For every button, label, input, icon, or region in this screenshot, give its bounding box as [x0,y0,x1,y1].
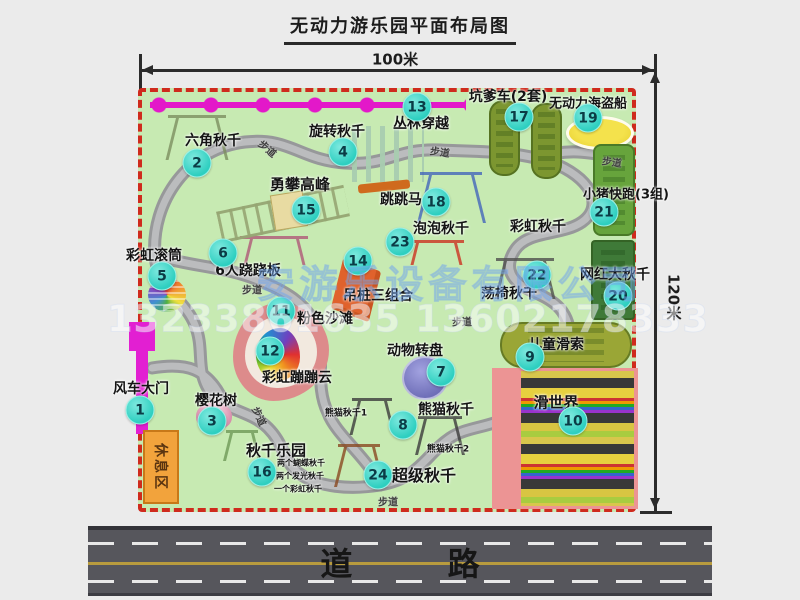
path-label-1: 步道 [429,142,451,160]
attraction-17-label: 坑爹车(2套) [469,86,548,106]
attraction-9-badge: 9 [516,343,545,372]
playground-map-page: 无动力游乐园平面布局图 100米 120米 休息区 风车大门1六角秋千2樱花树3… [0,0,800,600]
attraction-4-badge: 4 [329,138,358,167]
attraction-15-label: 勇攀高峰 [270,174,330,195]
dimension-tick-bottom-right [640,511,672,514]
slide-world-icon [492,368,638,509]
attraction-16-badge: 16 [248,458,277,487]
attraction-6-badge: 6 [209,239,238,268]
attraction-2-label: 六角秋千 [185,130,241,150]
attraction-12-label: 彩虹蹦蹦云 [262,367,332,387]
rest-area-box: 休息区 [143,430,179,504]
attraction-23-label: 泡泡秋千 [413,218,469,238]
dimension-arrow-down [650,498,660,509]
pit-car-track-2-icon [531,103,562,179]
dimension-label-top: 100米 [372,49,418,70]
attraction-15-badge: 15 [292,196,321,225]
extra-label-4: 两个发光秋千 [276,471,324,482]
attraction-12-badge: 12 [256,337,285,366]
attraction-23-badge: 23 [386,228,415,257]
attraction-17-badge: 17 [505,103,534,132]
attraction-1-badge: 1 [126,396,155,425]
rest-area-label: 休息区 [151,443,171,491]
attraction-8-label: 熊猫秋千 [418,399,474,419]
dimension-arrow-up [650,72,660,83]
attraction-5-label: 彩虹滚筒 [126,245,182,265]
attraction-19-badge: 19 [574,104,603,133]
extra-label-1: 熊猫秋千1 [325,406,367,419]
dimension-line-right [654,70,657,512]
attraction-3-badge: 3 [198,407,227,436]
attraction-21-badge: 21 [590,198,619,227]
path-label-6: 步道 [378,494,398,509]
extra-label-3: 两个蝴蝶秋千 [277,458,325,469]
attraction-13-badge: 13 [403,93,432,122]
attraction-18-badge: 18 [422,188,451,217]
attraction-2-badge: 2 [183,149,212,178]
attraction-18-label: 跳跳马 [380,189,422,209]
extra-label-5: 一个彩虹秋千 [274,484,322,495]
attraction-7-badge: 7 [427,358,456,387]
attraction-8-badge: 8 [389,411,418,440]
extra-label-0: 彩虹秋千 [510,216,566,236]
attraction-24-badge: 24 [364,461,393,490]
page-title: 无动力游乐园平面布局图 [284,12,516,45]
path-label-2: 步道 [601,152,623,170]
attraction-10-badge: 10 [559,407,588,436]
road: 道 路 [88,526,712,596]
watermark-phone: 13233861635 13602178333 [107,298,709,341]
attraction-5-badge: 5 [148,262,177,291]
extra-label-2: 熊猫秋千2 [427,442,469,455]
attraction-24-label: 超级秋千 [392,462,456,486]
attraction-7-label: 动物转盘 [387,340,443,360]
road-label: 道 路 [278,539,521,585]
dimension-arrow-left [142,65,153,75]
